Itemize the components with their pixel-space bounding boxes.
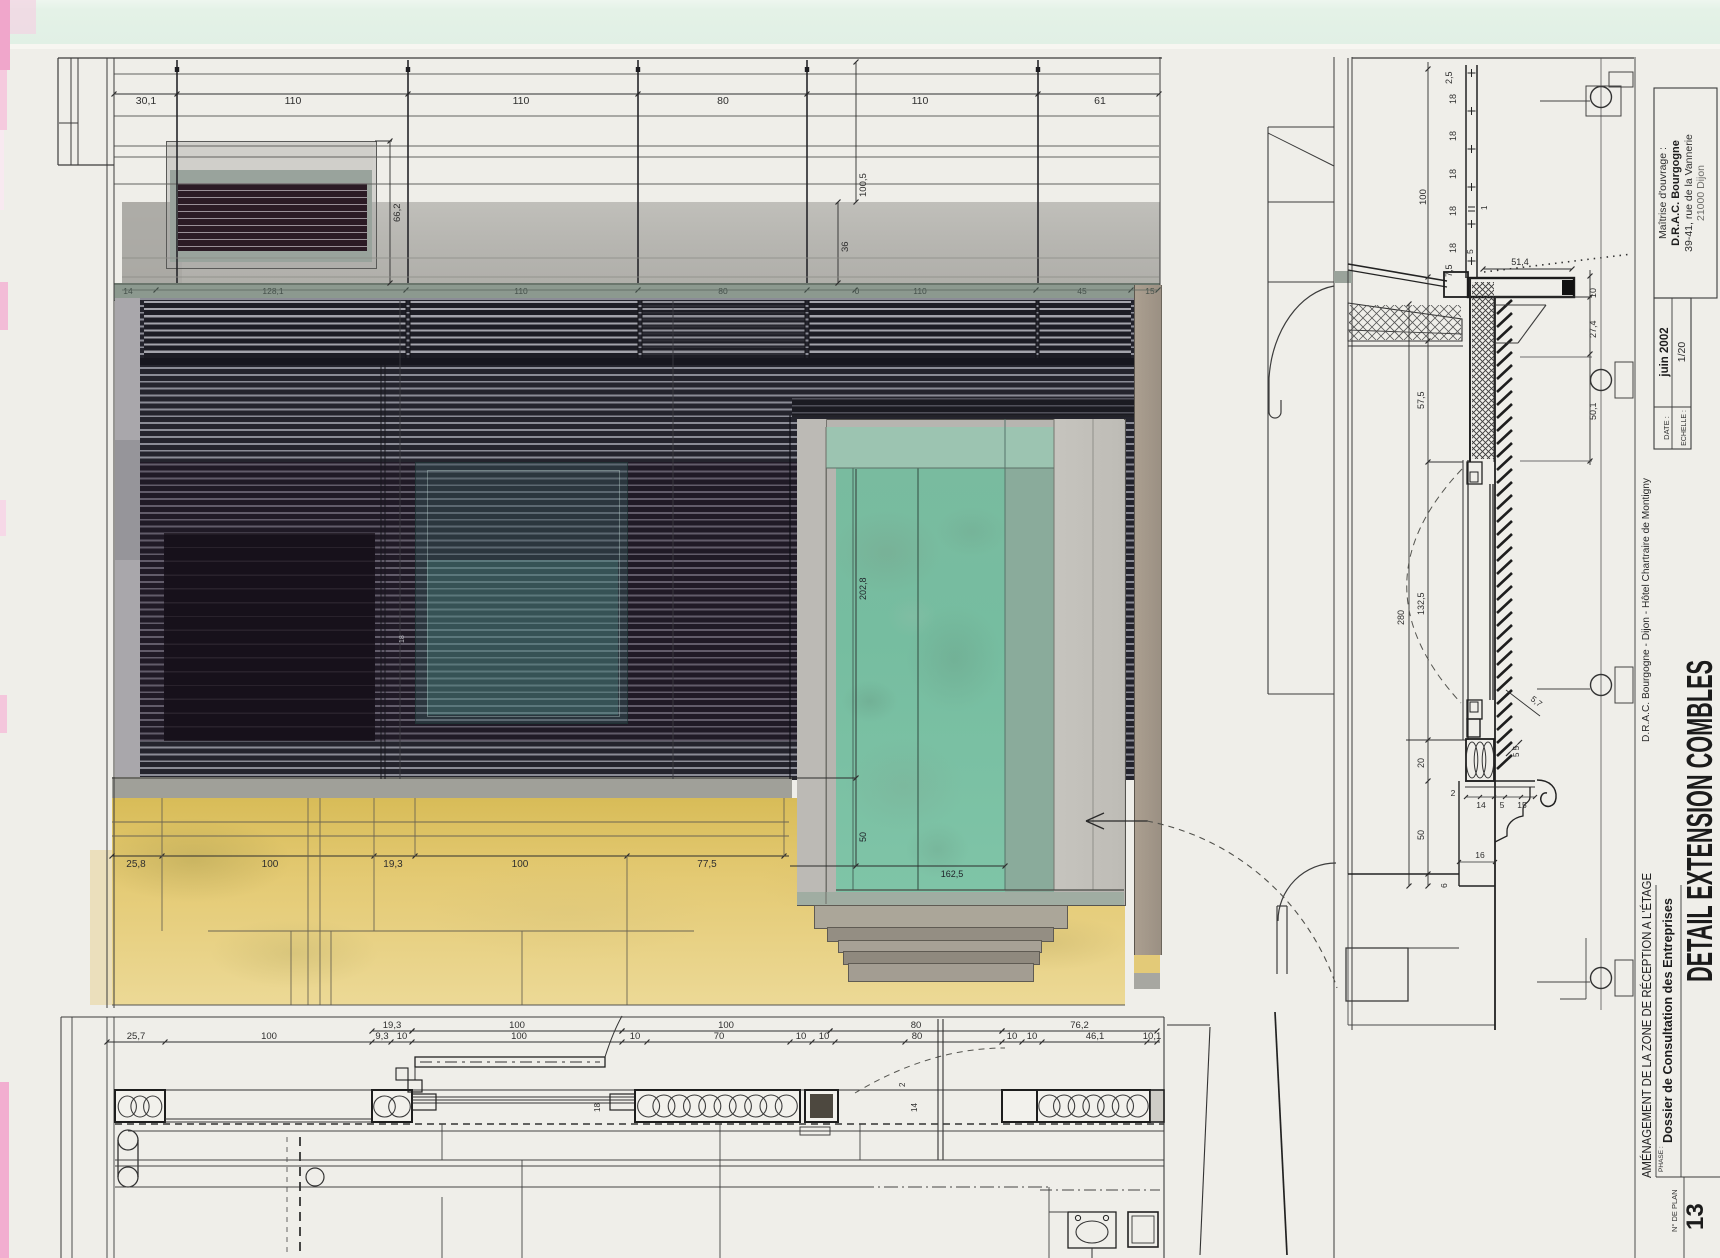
svg-text:66,2: 66,2 xyxy=(392,204,403,223)
svg-text:10: 10 xyxy=(819,1031,830,1042)
svg-text:18: 18 xyxy=(1448,131,1458,141)
svg-text:18: 18 xyxy=(1448,169,1458,179)
svg-text:80: 80 xyxy=(718,286,728,296)
svg-text:10: 10 xyxy=(630,1031,641,1042)
svg-text:18: 18 xyxy=(1448,206,1458,216)
svg-text:100: 100 xyxy=(718,1020,734,1031)
svg-text:D.R.A.C. Bourgogne: D.R.A.C. Bourgogne xyxy=(1670,140,1682,246)
svg-text:50: 50 xyxy=(1416,830,1426,840)
svg-text:27,4: 27,4 xyxy=(1588,320,1598,338)
svg-text:100,5: 100,5 xyxy=(858,173,869,197)
svg-text:132,5: 132,5 xyxy=(1416,592,1426,615)
svg-text:110: 110 xyxy=(285,95,302,107)
svg-text:7,5: 7,5 xyxy=(1444,264,1454,277)
svg-text:100: 100 xyxy=(509,1020,525,1031)
svg-text:30,1: 30,1 xyxy=(136,95,157,107)
svg-text:15: 15 xyxy=(1517,800,1527,810)
svg-text:61: 61 xyxy=(1094,95,1106,107)
svg-text:76,2: 76,2 xyxy=(1070,1020,1089,1031)
svg-text:Maîtrise d'ouvrage :: Maîtrise d'ouvrage : xyxy=(1657,147,1669,239)
svg-text:D.R.A.C. Bourgogne - Dijon - H: D.R.A.C. Bourgogne - Dijon - Hôtel Chart… xyxy=(1640,477,1652,742)
svg-text:25,8: 25,8 xyxy=(126,859,146,870)
svg-text:14: 14 xyxy=(910,1103,919,1112)
svg-text:AMÉNAGEMENT DE LA ZONE DE RÉCE: AMÉNAGEMENT DE LA ZONE DE RÉCEPTION A L'… xyxy=(1639,873,1654,1178)
svg-text:10: 10 xyxy=(1588,288,1598,298)
svg-text:110: 110 xyxy=(912,95,929,107)
svg-text:51,4: 51,4 xyxy=(1511,257,1529,267)
svg-text:46,1: 46,1 xyxy=(1086,1031,1105,1042)
svg-text:PHASE :: PHASE : xyxy=(1658,1146,1665,1172)
svg-text:5,7: 5,7 xyxy=(1529,694,1545,709)
svg-text:13: 13 xyxy=(1682,1203,1709,1230)
svg-text:36: 36 xyxy=(840,241,851,252)
svg-text:80: 80 xyxy=(911,1020,922,1031)
svg-text:19,3: 19,3 xyxy=(383,859,403,870)
svg-text:15: 15 xyxy=(1145,286,1155,296)
svg-text:1/20: 1/20 xyxy=(1676,342,1688,363)
svg-text:77,5: 77,5 xyxy=(697,859,717,870)
svg-text:80: 80 xyxy=(912,1031,923,1042)
svg-text:5 5: 5 5 xyxy=(1512,745,1521,757)
svg-text:5: 5 xyxy=(1500,800,1505,810)
svg-text:21000 Dijon: 21000 Dijon xyxy=(1695,165,1707,221)
svg-text:100: 100 xyxy=(262,859,279,870)
svg-text:DATE :: DATE : xyxy=(1662,416,1671,440)
svg-text:6: 6 xyxy=(1439,883,1449,888)
svg-text:25,7: 25,7 xyxy=(127,1031,146,1042)
svg-text:100: 100 xyxy=(1418,189,1429,205)
svg-text:1: 1 xyxy=(1480,205,1489,210)
svg-text:10: 10 xyxy=(1027,1031,1038,1042)
svg-text:Dossier de Consultation des En: Dossier de Consultation des Entreprises xyxy=(1660,898,1675,1143)
svg-text:9,3: 9,3 xyxy=(375,1031,388,1042)
svg-text:110: 110 xyxy=(913,286,927,296)
svg-text:100: 100 xyxy=(512,859,529,870)
svg-text:14: 14 xyxy=(123,286,133,296)
svg-text:100: 100 xyxy=(261,1031,277,1042)
svg-text:20: 20 xyxy=(1416,758,1426,768)
svg-text:80: 80 xyxy=(717,95,729,107)
svg-text:19,3: 19,3 xyxy=(383,1020,402,1031)
svg-text:2: 2 xyxy=(1451,788,1456,798)
svg-text:10: 10 xyxy=(397,1031,408,1042)
svg-text:18: 18 xyxy=(1448,243,1458,253)
svg-text:45: 45 xyxy=(1077,286,1087,296)
svg-text:10,1: 10,1 xyxy=(1143,1031,1162,1042)
svg-text:162,5: 162,5 xyxy=(941,869,964,879)
svg-text:16: 16 xyxy=(1475,850,1485,860)
svg-text:juin 2002: juin 2002 xyxy=(1659,327,1671,377)
svg-text:14: 14 xyxy=(1476,800,1486,810)
svg-text:70: 70 xyxy=(714,1031,725,1042)
svg-text:N° DE PLAN: N° DE PLAN xyxy=(1670,1189,1679,1232)
svg-text:100: 100 xyxy=(511,1031,527,1042)
svg-text:18: 18 xyxy=(1448,94,1458,104)
svg-text:10: 10 xyxy=(1007,1031,1018,1042)
svg-text:50: 50 xyxy=(858,832,868,842)
svg-text:110: 110 xyxy=(514,286,528,296)
svg-text:39-41, rue de la Vannerie: 39-41, rue de la Vannerie xyxy=(1683,134,1695,252)
svg-text:57,5: 57,5 xyxy=(1416,391,1426,409)
svg-text:DETAIL EXTENSION COMBLES: DETAIL EXTENSION COMBLES xyxy=(1679,660,1720,982)
svg-text:280: 280 xyxy=(1396,610,1406,625)
svg-text:202,8: 202,8 xyxy=(858,577,868,600)
svg-text:2,5: 2,5 xyxy=(1444,71,1454,84)
svg-text:128,1: 128,1 xyxy=(262,286,284,296)
svg-text:110: 110 xyxy=(513,95,530,107)
svg-text:18: 18 xyxy=(593,1103,602,1112)
svg-text:10: 10 xyxy=(796,1031,807,1042)
svg-text:50,1: 50,1 xyxy=(1588,402,1598,420)
svg-text:ECHELLE :: ECHELLE : xyxy=(1681,410,1688,446)
svg-text:18: 18 xyxy=(399,635,406,643)
svg-text:2: 2 xyxy=(898,1082,907,1087)
